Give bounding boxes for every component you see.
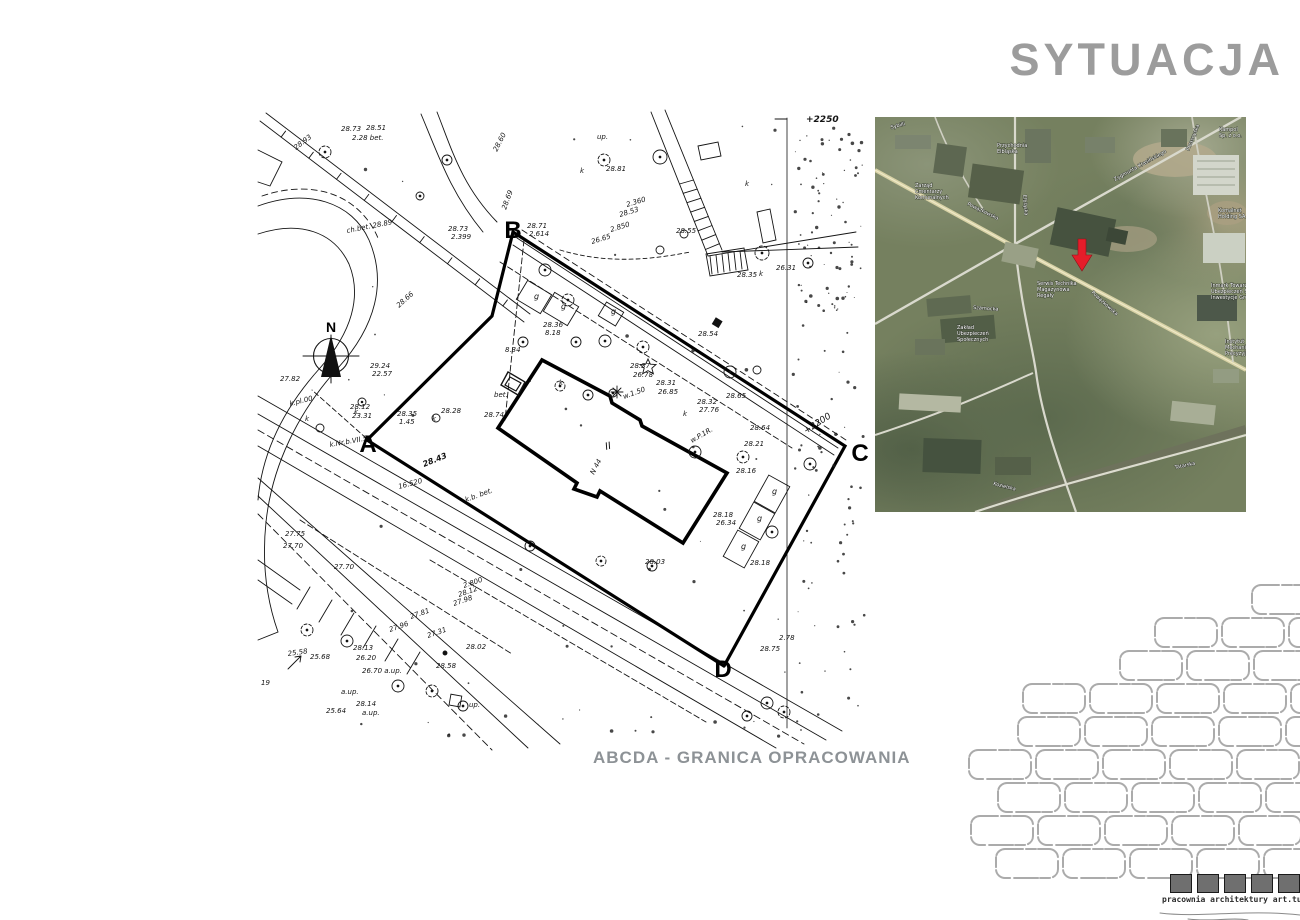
satellite-label: Regały xyxy=(1037,293,1054,299)
map-annotation: g xyxy=(757,514,762,523)
boundary-letter-A: A xyxy=(359,431,376,458)
map-annotation: 28.21 xyxy=(744,440,764,448)
map-annotation: k xyxy=(759,270,764,278)
boundary-letter-B: B xyxy=(504,217,521,244)
satellite-label: Sp. z o.o. xyxy=(1219,133,1242,139)
map-annotation: 28.55 xyxy=(676,227,697,235)
map-annotation: 22.57 xyxy=(372,370,393,378)
logo-underline-squiggle xyxy=(1160,913,1300,920)
map-annotation: 28.74 xyxy=(484,411,504,419)
map-annotation: 27.81 xyxy=(409,607,431,621)
map-annotation: w.1.50 xyxy=(622,385,647,401)
map-annotation: 8.34 xyxy=(505,346,521,354)
map-annotation: 28.31 xyxy=(656,379,676,387)
map-annotation: 28.36 xyxy=(543,321,564,329)
map-annotation: 26.31 xyxy=(776,264,796,272)
map-annotation: 28.18 xyxy=(713,511,734,519)
satellite-image: SybilliKampolSp. z o.o.PrzychodniaElbląs… xyxy=(875,117,1246,512)
map-annotation: 28.51 xyxy=(366,124,386,132)
map-annotation: a.up. xyxy=(341,688,359,696)
logo-square xyxy=(1278,874,1300,893)
map-annotation: w.P.1R. xyxy=(689,426,714,445)
map-annotation: 28.14 xyxy=(356,700,376,708)
map-annotation: 2.850 xyxy=(609,220,631,234)
map-annotation: k xyxy=(683,410,688,418)
map-annotation: g xyxy=(772,487,777,496)
garage-parcels xyxy=(449,280,790,707)
map-annotation: k xyxy=(559,379,564,387)
map-annotation: 27.96 xyxy=(388,620,410,634)
logo-square xyxy=(1170,874,1192,893)
map-annotation: 28.71 xyxy=(527,222,547,230)
road-hatch xyxy=(281,131,507,306)
map-annotation: 26.65 xyxy=(590,232,612,246)
map-annotation: 26.78 xyxy=(633,371,654,379)
map-annotation: 27.70 xyxy=(283,542,304,550)
studio-name: pracownia architektury art.tu xyxy=(1162,895,1300,904)
map-annotation: 28.03 xyxy=(645,558,665,566)
scan-noise xyxy=(348,126,866,738)
map-annotation: 27.82 xyxy=(280,375,301,383)
studio-logo: pracownia architektury art.tu xyxy=(1162,874,1300,904)
satellite-label: Inwestycje Grupy xyxy=(1211,295,1246,301)
map-annotation: 27.98 xyxy=(452,594,474,608)
map-annotation: 28.81 xyxy=(606,165,626,173)
satellite-label: Kozielska xyxy=(993,481,1017,492)
map-annotation: 26.20 xyxy=(356,654,377,662)
map-annotation: bet. xyxy=(494,391,508,399)
map-annotation: k xyxy=(305,415,310,423)
map-annotation: up. xyxy=(597,133,608,141)
map-annotation: 27.75 xyxy=(285,530,306,538)
map-annotation: 28.16 xyxy=(736,467,757,475)
satellite-label: Powązkowska xyxy=(966,201,999,221)
map-annotation: 28.60 xyxy=(492,131,508,153)
map-annotation: 25.64 xyxy=(326,707,346,715)
map-annotation: 28.35 xyxy=(397,410,418,418)
map-annotation: N 44 xyxy=(589,458,604,476)
satellite-label: Ubezpieczeń SA Verma xyxy=(1211,288,1246,295)
map-annotation: 19 xyxy=(261,679,270,687)
map-annotation: k xyxy=(580,167,585,175)
map-annotation: 26.34 xyxy=(716,519,736,527)
satellite-label: Elbląska xyxy=(997,149,1018,155)
satellite-label: Elbląska xyxy=(1021,195,1029,216)
map-annotation: 2.399 xyxy=(451,233,472,241)
satellite-label: Ubezpieczeń xyxy=(957,330,989,337)
map-annotation: 28.73 xyxy=(341,125,361,133)
map-annotation: 28.54 xyxy=(698,330,718,338)
logo-square xyxy=(1251,874,1273,893)
map-annotation: 27.70 xyxy=(334,563,355,571)
map-annotation: 28.69 xyxy=(500,189,515,211)
map-annotation: k xyxy=(745,180,750,188)
map-annotation: 28.75 xyxy=(760,645,781,653)
map-annotation: 28.18 xyxy=(750,559,771,567)
embankment-hatch xyxy=(680,180,720,250)
logo-square xyxy=(1197,874,1219,893)
satellite-label: Tatarska xyxy=(1173,461,1196,471)
map-annotation: 25.58 xyxy=(287,647,308,658)
map-annotation: 27.76 xyxy=(699,406,720,414)
map-annotation: 1.45 xyxy=(399,418,415,426)
boundary-caption: ABCDA - GRANICA OPRACOWANIA xyxy=(593,748,911,768)
map-annotation: 28.37 xyxy=(630,362,651,370)
satellite-label: Komunalnych xyxy=(915,195,949,201)
map-annotation: 28.02 xyxy=(466,643,487,651)
brick-wall-decoration xyxy=(969,585,1300,878)
map-annotation: 28.35 xyxy=(737,271,758,279)
map-annotation: 26.70 a.up. xyxy=(362,667,402,675)
map-annotation: 28.58 xyxy=(436,662,457,670)
map-annotation: g xyxy=(611,307,616,316)
map-annotation: 26.85 xyxy=(658,388,679,396)
satellite-label: Społecznych xyxy=(957,337,988,343)
map-annotation: a.up. xyxy=(362,709,380,717)
satellite-label: Precyzyjnej xyxy=(1225,351,1246,357)
map-annotation: k.b. bet. xyxy=(464,486,494,503)
map-annotation: 8.18 xyxy=(545,329,561,337)
map-annotation: k.pl.00 xyxy=(289,394,315,408)
logo-square xyxy=(1224,874,1246,893)
map-annotation: g xyxy=(561,302,566,311)
map-annotation: 28.64 xyxy=(750,424,770,432)
building-label: II xyxy=(604,441,613,453)
boundary-letter-C: C xyxy=(851,440,868,467)
map-annotation: 28.66 xyxy=(395,290,416,310)
north-label: N xyxy=(326,319,336,335)
map-annotation: 27.31 xyxy=(426,626,448,640)
map-annotation: 29.24 xyxy=(370,362,390,370)
satellite-label: Sybilli xyxy=(890,121,906,131)
map-annotation: 25.68 xyxy=(310,653,331,661)
page: SYTUACJA xyxy=(0,0,1300,920)
map-annotation: 2.614 xyxy=(529,230,549,238)
map-annotation: ch.bet. 28.89 xyxy=(346,218,394,235)
map-annotations: 28.7328.512.28 bet.28.9328.6028.6928.732… xyxy=(261,115,839,717)
map-annotation: +2200 xyxy=(802,411,833,436)
boundary-letters: ABCD xyxy=(359,217,868,683)
map-annotation: 2.78 xyxy=(779,634,795,642)
logo-squares xyxy=(1170,874,1300,893)
map-annotation: 28.32 xyxy=(697,398,718,406)
boundary-letter-D: D xyxy=(714,656,731,683)
map-annotation: 28.43 xyxy=(421,451,448,469)
map-annotation: up. xyxy=(469,701,480,709)
map-annotation: 28.73 xyxy=(448,225,468,233)
map-annotation: 28.65 xyxy=(726,392,747,400)
north-arrow-icon: N xyxy=(303,319,359,383)
map-annotation: g xyxy=(534,292,539,301)
satellite-label: Holding SA xyxy=(1218,214,1246,220)
map-annotation: +2250 xyxy=(806,115,839,125)
satellite-label: Szamocka xyxy=(973,305,999,313)
map-annotation: 28.53 xyxy=(618,205,640,219)
satellite-buildings xyxy=(895,129,1245,475)
map-annotation: 28.28 xyxy=(441,407,462,415)
map-annotation: g xyxy=(741,542,746,551)
building-outline xyxy=(498,360,727,543)
arrow-symbol xyxy=(288,656,301,669)
map-annotation: 28.13 xyxy=(353,644,373,652)
map-annotation: 2.28 bet. xyxy=(352,134,384,142)
